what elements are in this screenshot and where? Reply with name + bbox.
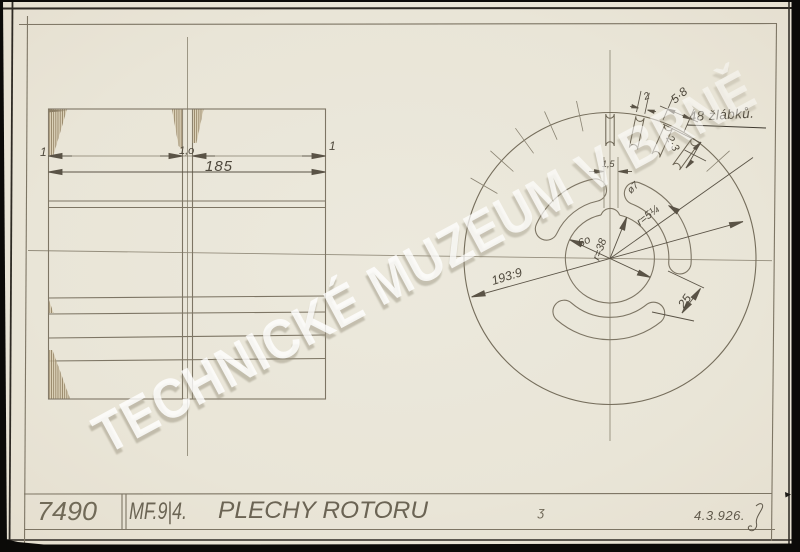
svg-text:1: 1 <box>40 145 47 159</box>
svg-text:1: 1 <box>329 139 336 153</box>
svg-text:MF.9|4.: MF.9|4. <box>129 498 187 525</box>
svg-text:185: 185 <box>205 158 233 175</box>
svg-text:PLECHY ROTORU: PLECHY ROTORU <box>218 497 429 524</box>
svg-text:ʒ: ʒ <box>537 504 545 519</box>
svg-text:7490: 7490 <box>37 496 98 526</box>
svg-text:4.3.926.: 4.3.926. <box>694 508 745 523</box>
svg-text:1,o: 1,o <box>179 145 194 157</box>
